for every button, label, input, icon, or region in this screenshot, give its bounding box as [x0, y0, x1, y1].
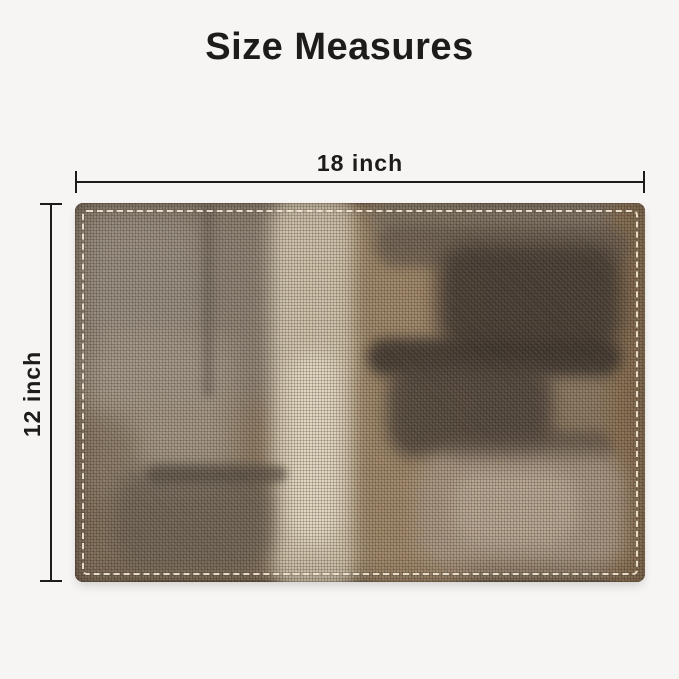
- page-title: Size Measures: [0, 26, 679, 69]
- dimension-tick-bottom: [40, 580, 62, 582]
- height-dimension-label: 12 inch: [19, 342, 45, 446]
- height-dimension-line: [50, 203, 52, 582]
- height-dimension: 12 inch: [40, 203, 62, 582]
- stitch-border: [82, 210, 638, 575]
- width-dimension-line: [75, 181, 645, 183]
- size-measures-diagram: Size Measures 18 inch 12 inch: [0, 0, 679, 679]
- width-dimension: 18 inch: [75, 150, 645, 194]
- placemat-photo: [75, 203, 645, 582]
- width-dimension-label: 18 inch: [75, 150, 645, 177]
- dimension-tick-right: [643, 171, 645, 193]
